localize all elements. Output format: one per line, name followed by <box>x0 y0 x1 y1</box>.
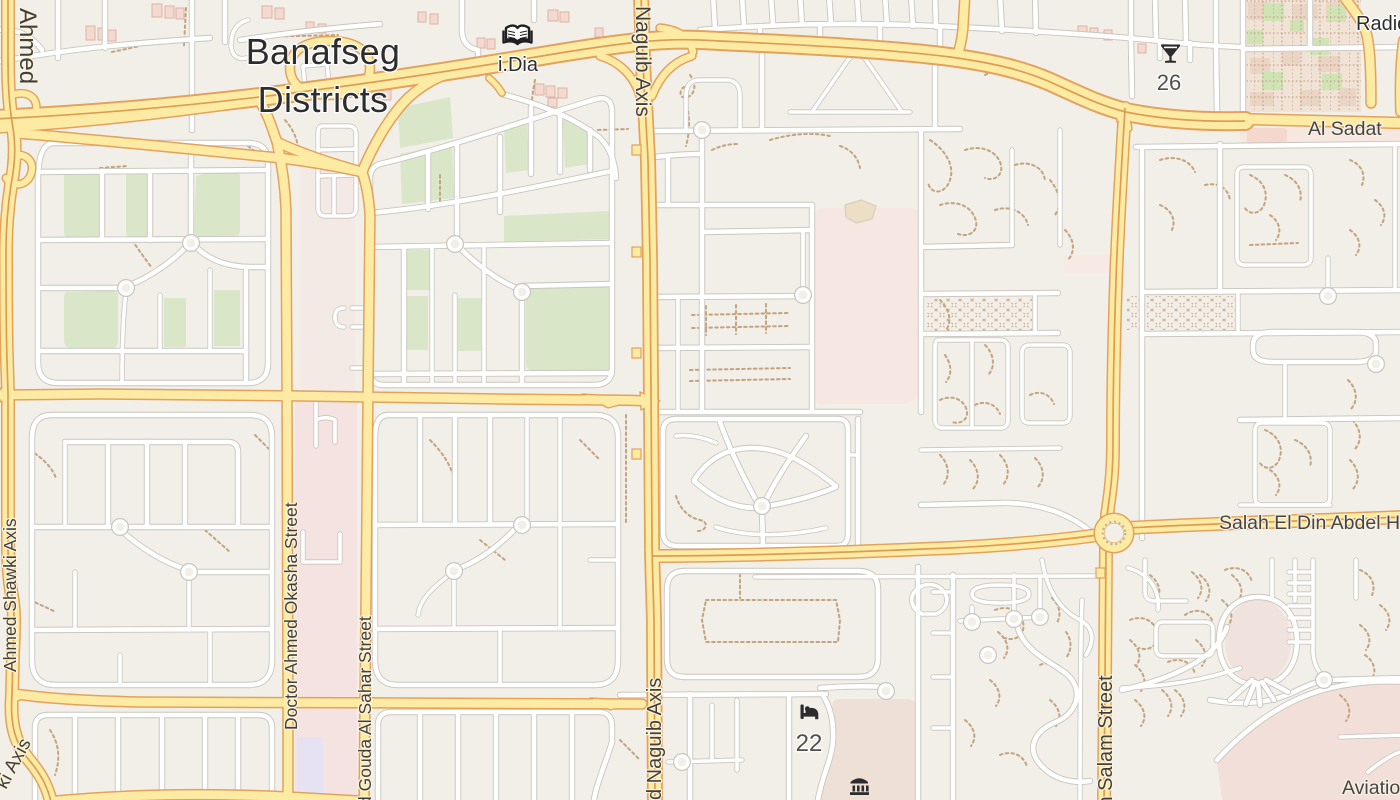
svg-text:Banafseg: Banafseg <box>246 31 401 72</box>
svg-text:Doctor Ahmed Okasha Street: Doctor Ahmed Okasha Street <box>281 502 301 730</box>
svg-text:Ahmed: Ahmed <box>14 8 41 84</box>
svg-text:d Naguib Axis: d Naguib Axis <box>644 678 666 800</box>
svg-text:26: 26 <box>1157 70 1181 95</box>
svg-text:22: 22 <box>796 730 823 757</box>
svg-text:Ahmed Shawki Axis: Ahmed Shawki Axis <box>0 518 20 672</box>
svg-text:Districts: Districts <box>258 79 389 120</box>
svg-text:Radio: Radio <box>1356 13 1400 35</box>
svg-text:d Gouda Al Sahar Street: d Gouda Al Sahar Street <box>355 616 375 800</box>
svg-text:Al Sadat: Al Sadat <box>1308 118 1382 140</box>
svg-text:Salah El Din Abdel Ha: Salah El Din Abdel Ha <box>1219 512 1400 534</box>
svg-text:i.Dia: i.Dia <box>498 54 539 76</box>
svg-text:in Salam Street: in Salam Street <box>1095 675 1117 800</box>
svg-text:Aviation: Aviation <box>1342 777 1400 799</box>
svg-text:Naguib Axis: Naguib Axis <box>631 6 654 117</box>
